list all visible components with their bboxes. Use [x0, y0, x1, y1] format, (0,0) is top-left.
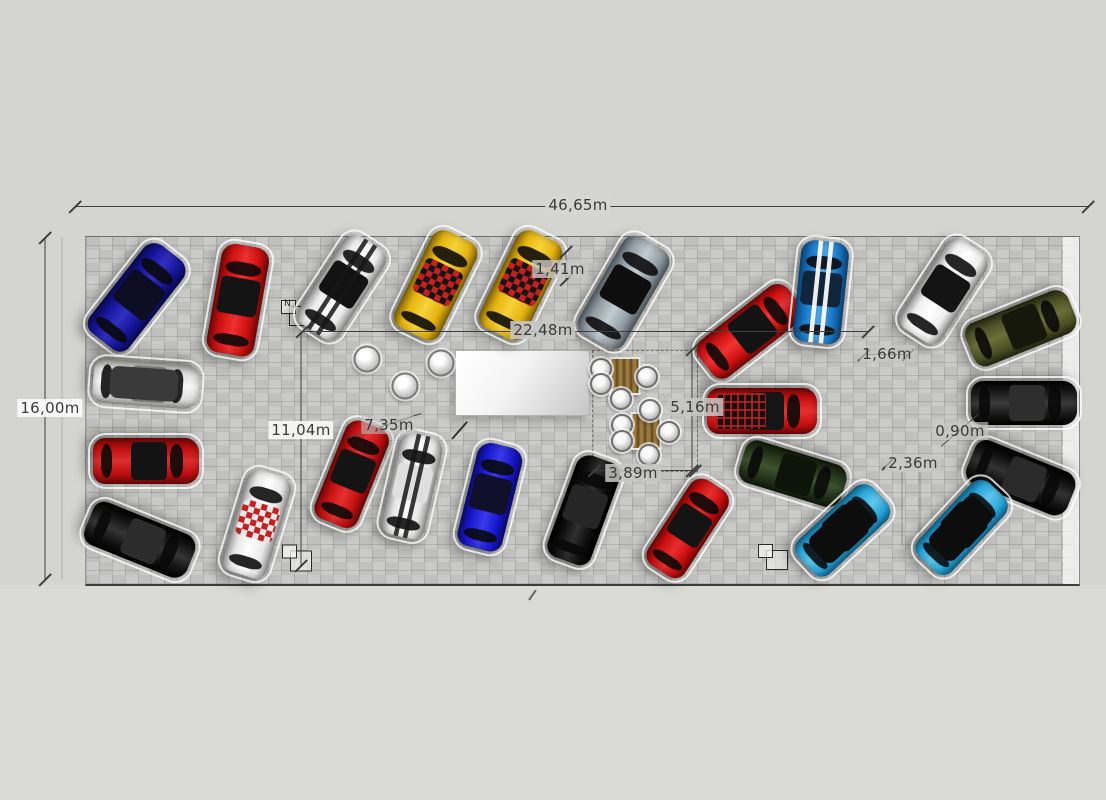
car-rear-window	[319, 499, 355, 522]
car-roof	[561, 483, 609, 530]
stool[interactable]	[392, 373, 419, 400]
reception-desk[interactable]	[455, 350, 590, 416]
car-body	[92, 358, 201, 409]
dimension-line	[301, 332, 302, 566]
car-windshield	[170, 444, 183, 479]
chair[interactable]	[611, 430, 633, 452]
car-rear-window	[101, 444, 112, 479]
dimension-label: 1,66m	[859, 345, 915, 363]
car-rear-window	[979, 386, 990, 419]
car-cargo-bed	[716, 393, 767, 430]
chair[interactable]	[636, 366, 658, 388]
car-body	[971, 381, 1077, 425]
car-rear-window	[227, 551, 264, 571]
car-roof	[468, 472, 513, 516]
wall-symbol[interactable]	[758, 544, 788, 570]
chair[interactable]	[638, 444, 660, 466]
car-roof	[131, 442, 167, 480]
car-blue-stripe-8[interactable]	[792, 239, 850, 345]
car-windshield	[1048, 386, 1061, 419]
car-body	[93, 438, 199, 484]
chair[interactable]	[639, 399, 661, 421]
chair[interactable]	[658, 421, 680, 443]
dimension-label: 5,16m	[667, 398, 723, 416]
stool[interactable]	[428, 350, 455, 377]
stool[interactable]	[354, 346, 381, 373]
dimension-label: 3,89m	[605, 464, 661, 482]
chair[interactable]	[590, 373, 612, 395]
car-roof	[216, 275, 261, 319]
car-body	[707, 388, 817, 434]
car-rear-window	[462, 526, 498, 545]
dimension-line	[302, 331, 868, 332]
dimension-label: 46,65m	[545, 196, 610, 214]
car-rear-window	[212, 331, 250, 348]
car-interior	[109, 365, 179, 402]
wall-symbol-tag: N	[284, 299, 291, 309]
viewport: N 46,65m16,00m22,48m1,41m11,04m7,35m5,16…	[0, 0, 1106, 800]
background-lower-band	[0, 585, 1106, 800]
dimension-label: 11,04m	[268, 421, 333, 439]
car-red-pickup-13[interactable]	[707, 388, 817, 434]
dimension-line	[902, 473, 903, 546]
car-rear-window	[746, 445, 766, 480]
dimension-label: 0,90m	[932, 422, 988, 440]
car-rear-window	[972, 325, 995, 362]
car-rear-window	[91, 506, 114, 543]
car-roof	[774, 452, 819, 497]
car-white-roadster-17[interactable]	[92, 358, 201, 409]
chair[interactable]	[610, 388, 632, 410]
dimension-line	[920, 473, 921, 546]
dimension-label: 16,00m	[17, 399, 82, 417]
car-black-suv-11[interactable]	[971, 381, 1077, 425]
dimension-label: 1,41m	[532, 260, 588, 278]
dimension-label: 2,36m	[885, 454, 941, 472]
car-roof	[1009, 385, 1045, 421]
car-red-sedan-18[interactable]	[93, 438, 199, 484]
dimension-label: 7,35m	[361, 416, 417, 434]
car-roof	[235, 498, 282, 543]
wall-symbol-flag	[282, 545, 297, 559]
dimension-label: 22,48m	[510, 321, 575, 339]
car-windshield	[787, 394, 800, 429]
car-rear-window	[552, 537, 589, 559]
wall-symbol-flag	[758, 544, 773, 558]
